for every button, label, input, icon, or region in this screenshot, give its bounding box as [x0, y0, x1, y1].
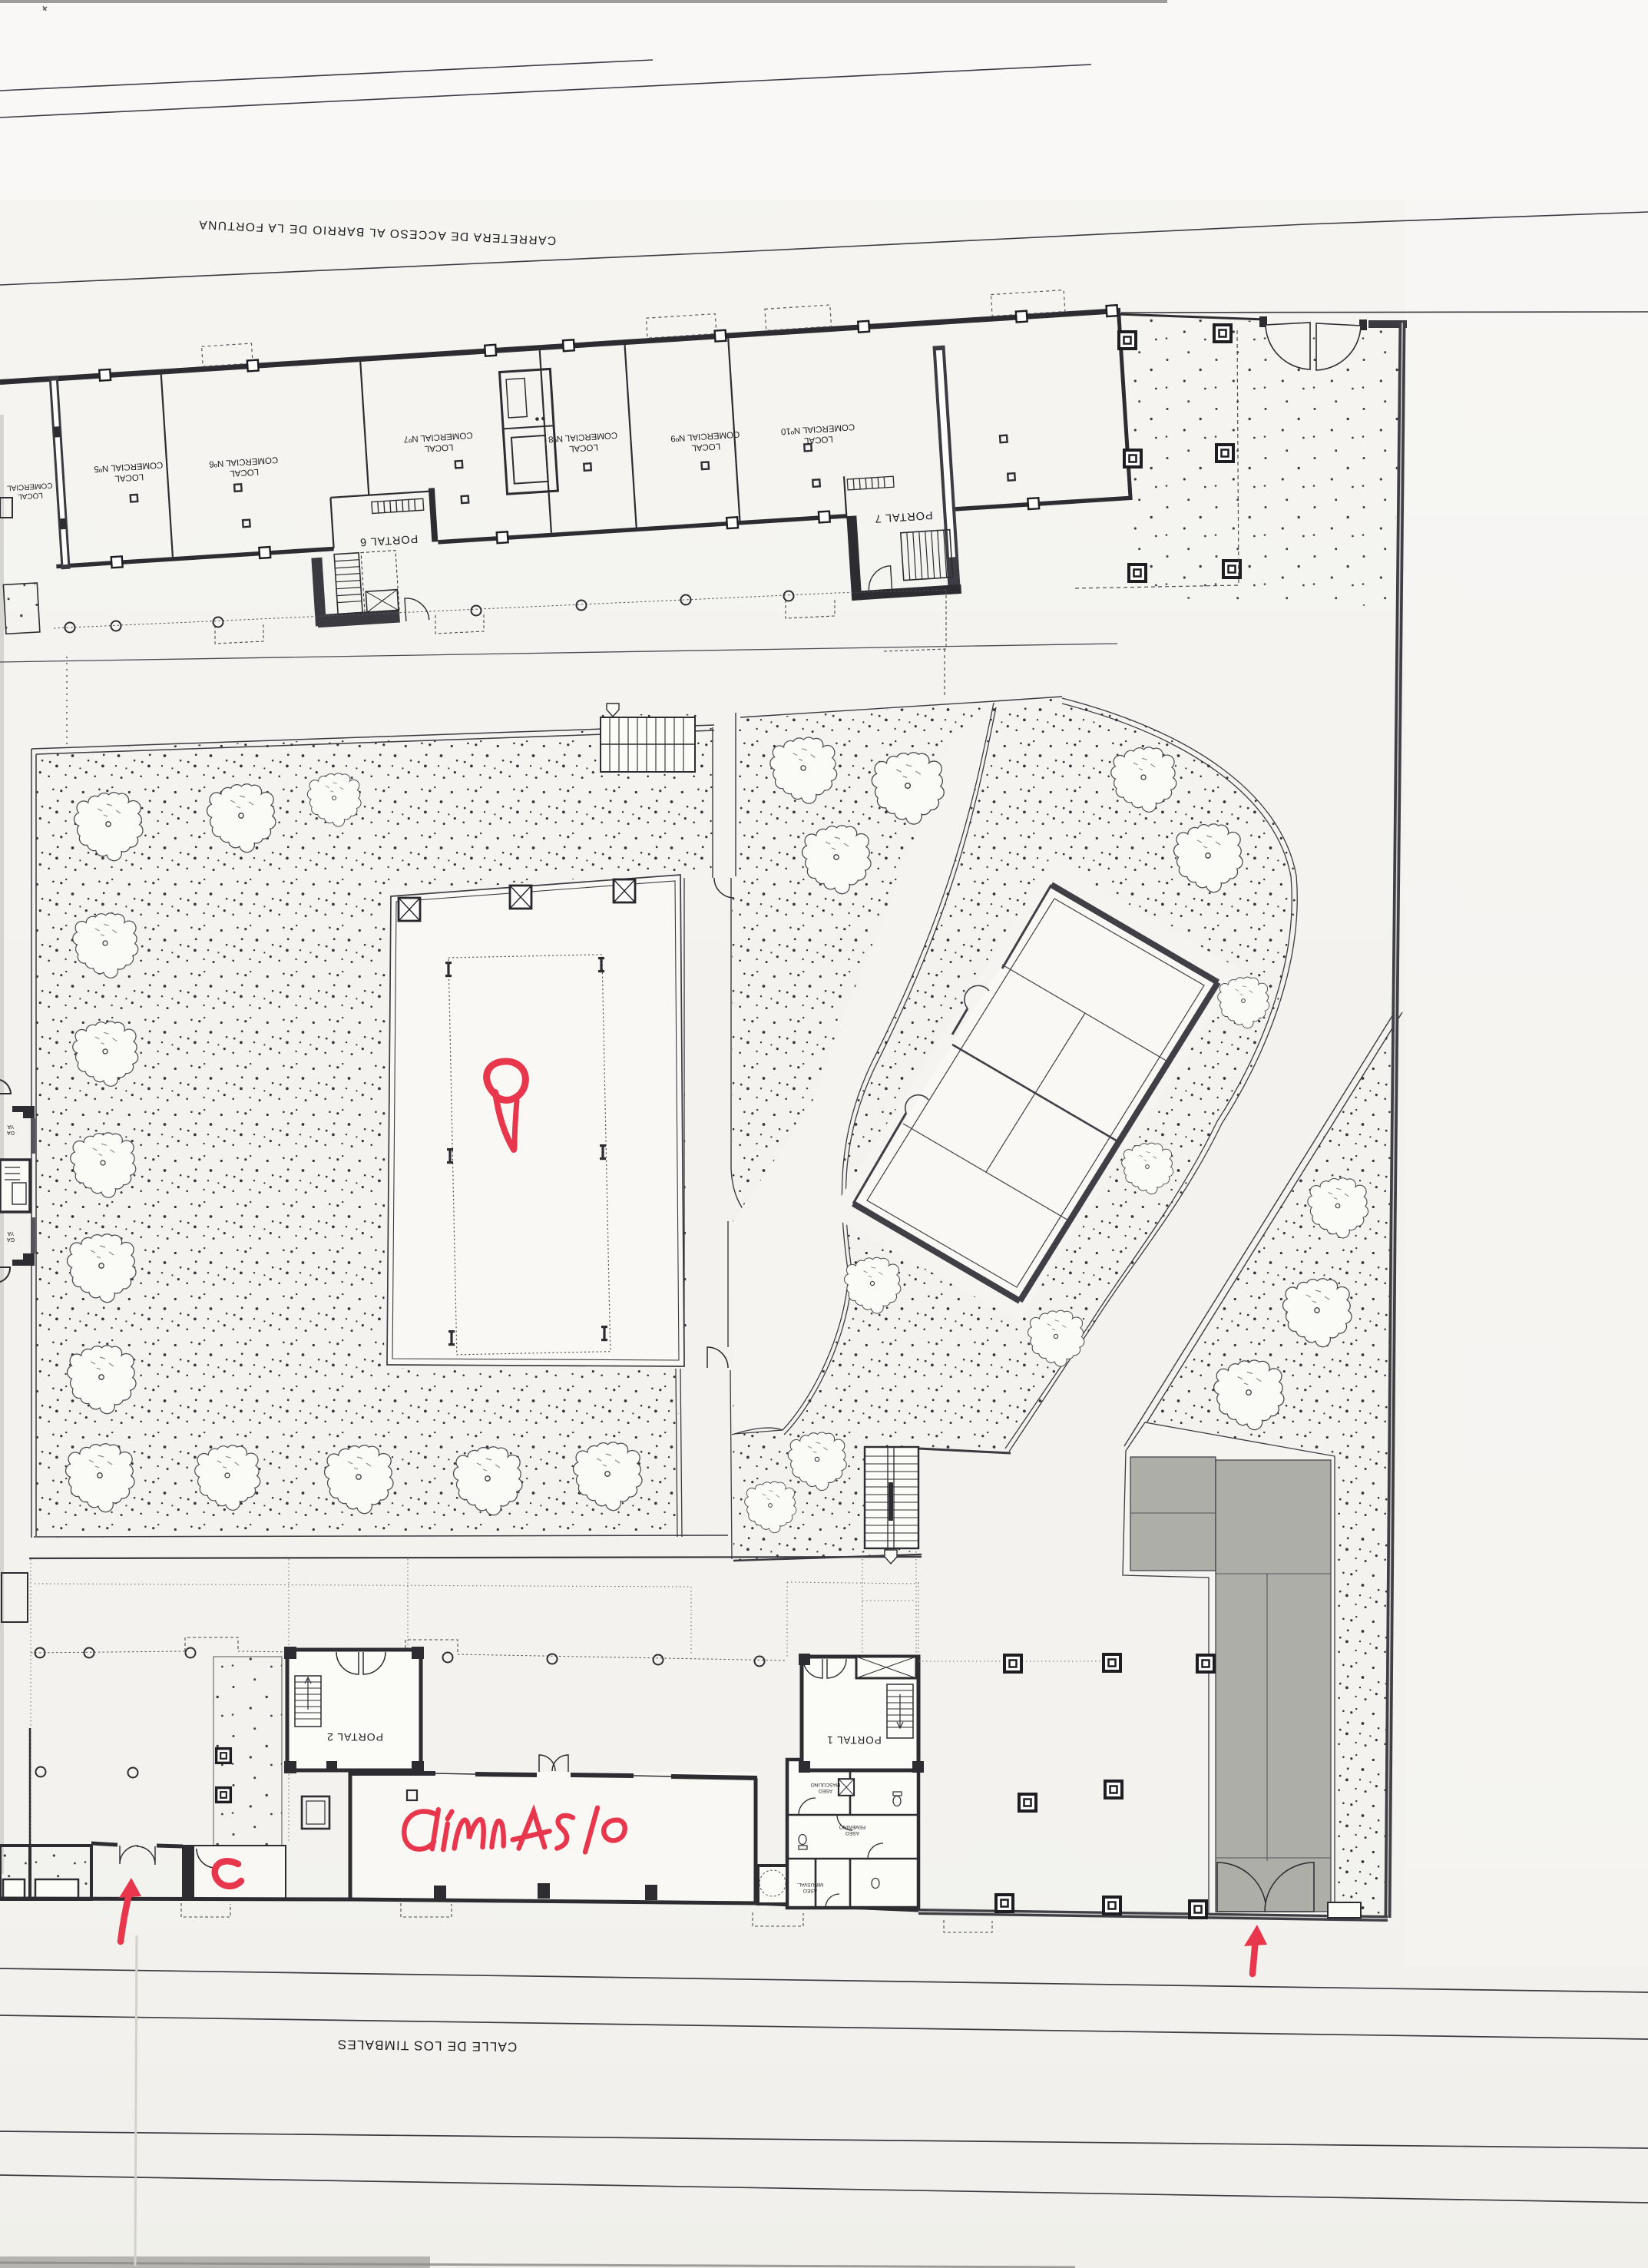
svg-text:ASEO: ASEO [846, 1830, 859, 1836]
svg-text:LOCAL: LOCAL [17, 491, 43, 501]
svg-text:FEMENINO: FEMENINO [839, 1824, 865, 1829]
svg-text:LOCAL: LOCAL [568, 442, 598, 453]
svg-text:LOCAL: LOCAL [803, 434, 833, 445]
svg-text:CALLE DE LOS TIMBALES: CALLE DE LOS TIMBALES [337, 2037, 518, 2054]
svg-text:GA: GA [7, 1237, 15, 1242]
svg-text:MINUSVAL.: MINUSVAL. [797, 1882, 824, 1887]
svg-text:LOCAL: LOCAL [690, 441, 720, 452]
svg-text:PORTAL 1: PORTAL 1 [826, 1734, 882, 1746]
svg-text:GA: GA [7, 1130, 15, 1135]
svg-text:PORTAL 2: PORTAL 2 [326, 1731, 383, 1743]
svg-text:LOCAL: LOCAL [424, 442, 454, 453]
svg-text:LOCAL: LOCAL [229, 467, 259, 478]
svg-text:ASEO: ASEO [803, 1888, 817, 1893]
svg-text:ASEO: ASEO [819, 1788, 832, 1793]
svg-text:MASCULINO: MASCULINO [811, 1782, 841, 1787]
svg-text:LOCAL: LOCAL [114, 472, 144, 482]
svg-text:YA: YA [7, 1230, 14, 1236]
svg-text:YA: YA [7, 1124, 14, 1129]
